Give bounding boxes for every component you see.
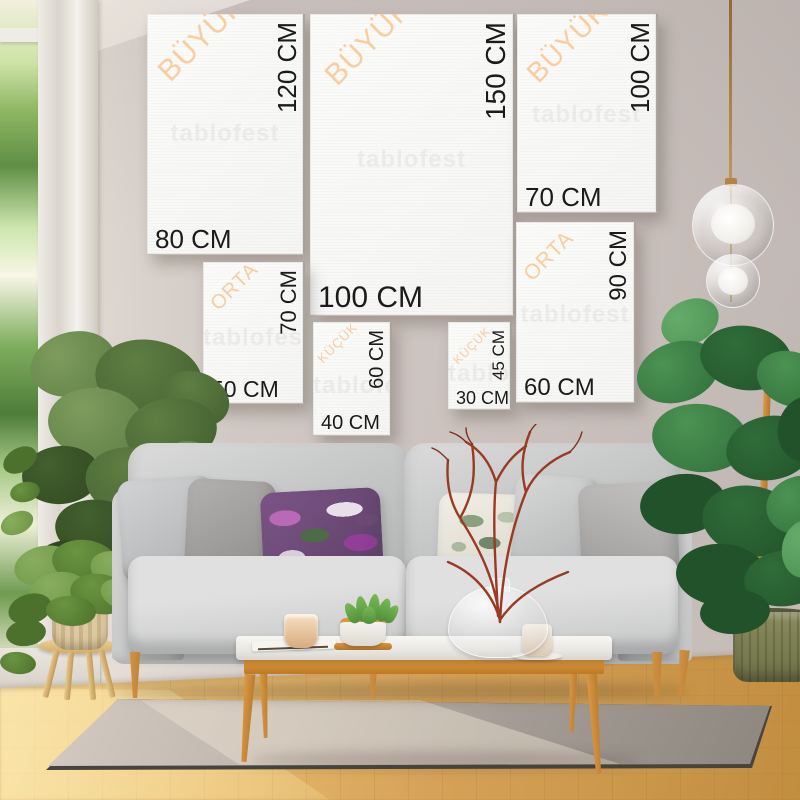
living-room-size-guide: tablofestBÜYÜK120 CM80 CMtablofestBÜYÜK1…: [0, 0, 800, 800]
succulent-plant: [0, 0, 800, 800]
decorative-red-branches: [408, 424, 592, 624]
succulent-leaf: [362, 606, 376, 624]
